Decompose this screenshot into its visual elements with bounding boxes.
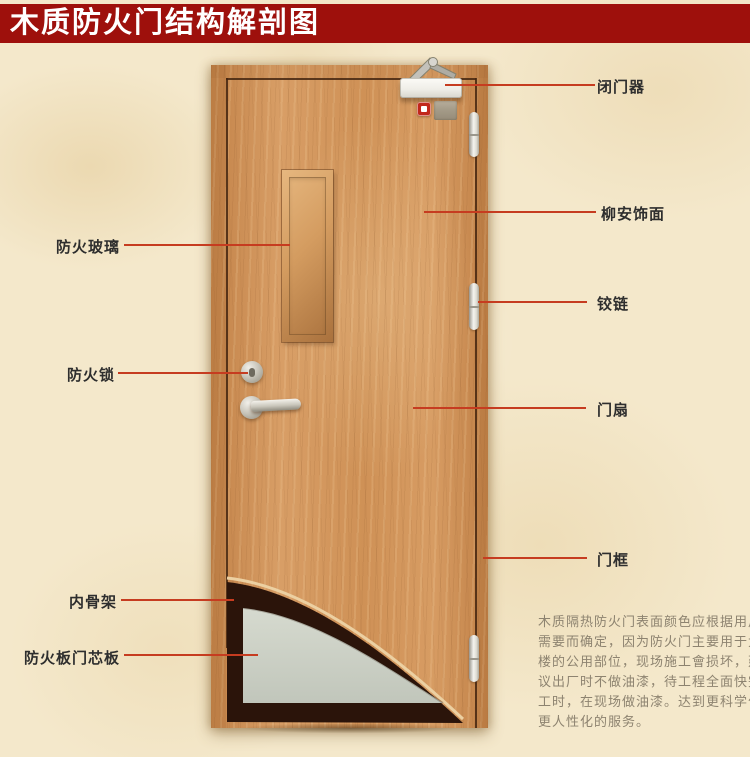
leader-line-door-closer — [445, 84, 595, 86]
label-door-leaf: 门扇 — [597, 399, 629, 420]
label-hinge: 铰链 — [597, 293, 629, 314]
page-title: 木质防火门结构解剖图 — [10, 4, 320, 43]
label-fire-board-core: 防火板门芯板 — [24, 647, 120, 668]
description-paragraph: 木质隔热防火门表面颜色应根据用户 需要而确定，因为防火门主要用于大 楼的公用部位… — [538, 612, 750, 732]
label-inner-skeleton: 内骨架 — [69, 591, 117, 612]
hinge-middle — [469, 283, 479, 330]
title-bar: 木质防火门结构解剖图 — [0, 4, 750, 43]
description-line: 议出厂时不做油漆，待工程全面快完 — [538, 672, 750, 692]
alarm-button — [417, 102, 431, 116]
door-frame-left — [211, 65, 226, 728]
hinge-top — [469, 112, 479, 157]
diagram-page: 木质防火门结构解剖图 — [0, 0, 750, 757]
door-drop-shadow — [205, 724, 495, 738]
description-line: 工时，在现场做油漆。达到更科学化 — [538, 692, 750, 712]
label-door-frame: 门框 — [597, 549, 629, 570]
door-photo — [211, 65, 488, 728]
label-fire-lock: 防火锁 — [67, 364, 115, 385]
leader-line-fire-lock — [118, 372, 248, 374]
keyhole — [249, 368, 255, 377]
leader-line-fire-board-core — [124, 654, 258, 656]
leader-line-hinge — [478, 301, 587, 303]
hinge-seam — [469, 134, 479, 136]
description-line: 需要而确定，因为防火门主要用于大 — [538, 632, 750, 652]
door-handle — [251, 398, 302, 412]
description-line: 更人性化的服务。 — [538, 712, 750, 732]
leader-line-inner-skeleton — [121, 599, 234, 601]
fire-glass-panel — [289, 177, 326, 335]
leader-line-door-leaf — [413, 407, 586, 409]
label-fire-glass: 防火玻璃 — [56, 236, 120, 257]
label-lauan-veneer: 柳安饰面 — [601, 203, 665, 224]
frame-gap-left — [226, 78, 228, 648]
cutaway-section — [225, 570, 477, 728]
door-frame-right — [476, 65, 488, 728]
leader-line-fire-glass — [124, 244, 290, 246]
description-line: 楼的公用部位，现场施工會损坏，建 — [538, 652, 750, 672]
alarm-button-dot — [421, 106, 427, 112]
leader-line-lauan-veneer — [424, 211, 596, 213]
hinge-seam — [469, 306, 479, 308]
metal-plate — [434, 101, 457, 120]
description-line: 木质隔热防火门表面颜色应根据用户 — [538, 612, 750, 632]
vision-panel-bevel — [282, 170, 333, 342]
door-closer-body — [400, 78, 462, 98]
label-door-closer: 闭门器 — [597, 76, 645, 97]
leader-line-door-frame — [483, 557, 587, 559]
